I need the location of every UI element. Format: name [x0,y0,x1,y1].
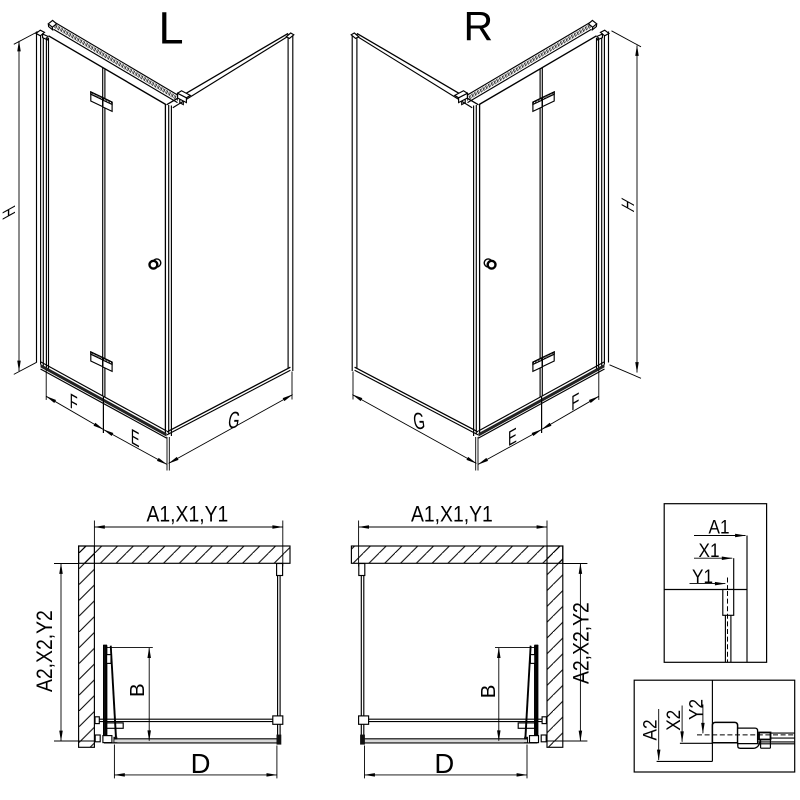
svg-text:X2: X2 [662,710,684,731]
svg-text:A1,X1,Y1: A1,X1,Y1 [147,502,229,526]
svg-text:D: D [191,748,211,779]
svg-text:H: H [617,194,638,215]
svg-text:A2,X2,Y2: A2,X2,Y2 [33,610,57,692]
svg-text:X1: X1 [699,539,720,561]
svg-text:A1,X1,Y1: A1,X1,Y1 [411,502,493,526]
svg-text:A1: A1 [709,515,730,537]
svg-text:B: B [126,683,149,697]
svg-text:E: E [131,423,140,452]
svg-text:B: B [477,685,500,699]
svg-text:H: H [0,202,19,223]
svg-text:E: E [508,422,517,451]
svg-text:R: R [464,3,494,49]
svg-text:F: F [571,387,579,416]
svg-text:Y1: Y1 [692,565,713,587]
svg-text:F: F [70,388,78,417]
svg-text:A2: A2 [638,720,660,741]
svg-text:Y2: Y2 [684,699,706,720]
svg-text:G: G [412,409,427,435]
svg-text:A2,X2,Y2: A2,X2,Y2 [569,602,593,684]
svg-text:G: G [226,408,242,434]
svg-text:D: D [434,748,454,779]
svg-text:L: L [159,3,184,54]
